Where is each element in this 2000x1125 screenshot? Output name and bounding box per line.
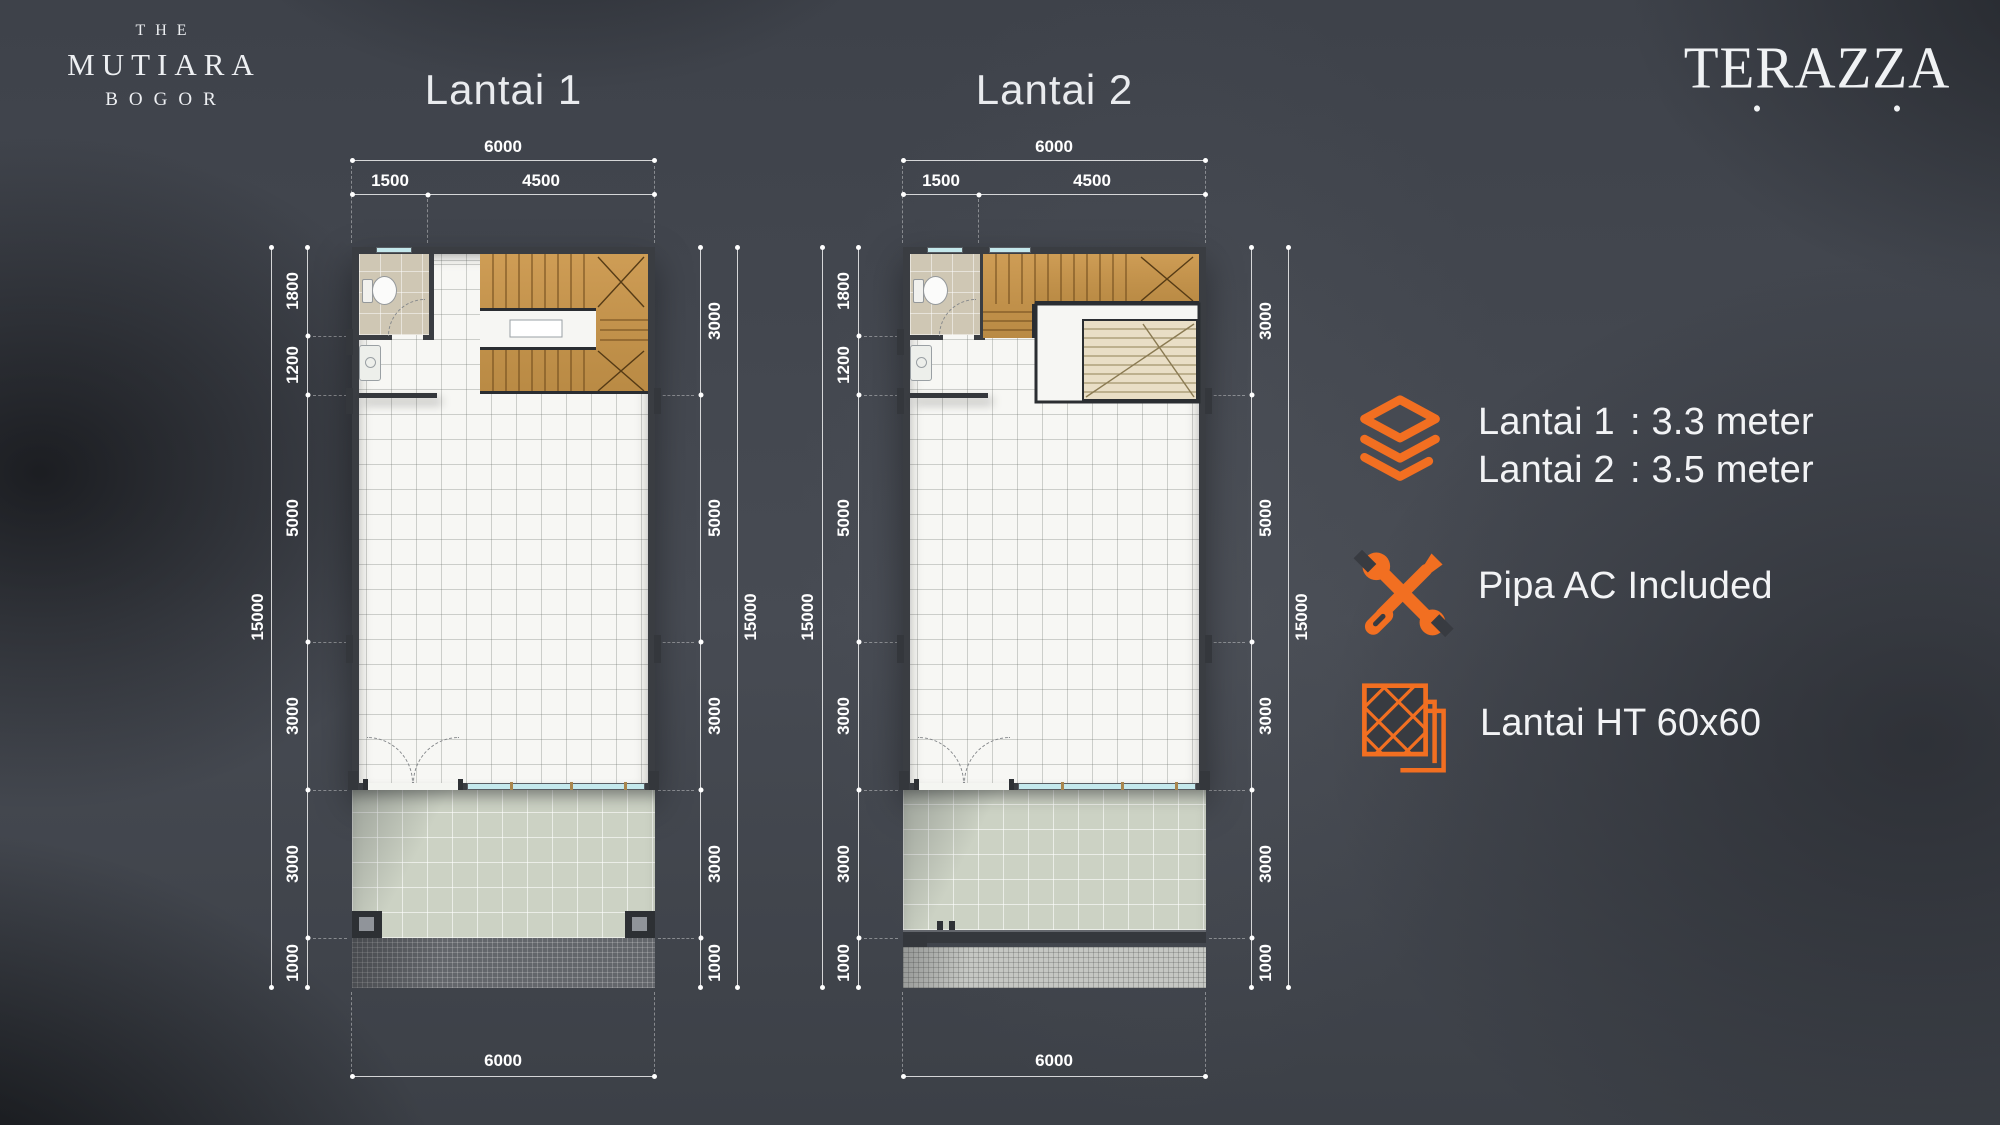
layers-icon — [1352, 392, 1448, 490]
dim-line — [903, 160, 1206, 161]
dim-tick — [699, 393, 704, 398]
dim-label: 3000 — [283, 697, 303, 735]
dim-extension — [313, 336, 347, 337]
dim-extension — [1205, 992, 1206, 1072]
dim-line — [700, 247, 701, 988]
product-logo-text: TERAZZA — [1684, 36, 1951, 102]
roof-edge-strip — [903, 947, 1206, 988]
terrace-column — [352, 911, 382, 938]
dim-extension — [654, 992, 655, 1072]
dim-label: 5000 — [1256, 499, 1276, 537]
toilet-bowl — [923, 276, 948, 305]
sink — [910, 345, 932, 381]
dim-label: 5000 — [283, 499, 303, 537]
dim-extension — [864, 642, 898, 643]
dim-tick — [426, 193, 431, 198]
brochure-canvas: { "brand": { "line1": "THE", "line2": "M… — [0, 0, 2000, 1125]
dim-label: 3000 — [834, 697, 854, 735]
dim-line — [903, 1076, 1206, 1077]
dim-tick — [699, 788, 704, 793]
window — [376, 247, 412, 253]
dim-tick — [306, 936, 311, 941]
dim-tick — [1250, 640, 1255, 645]
balcony-floor — [903, 790, 1206, 930]
wall-pilaster — [654, 388, 661, 414]
dim-label: 1500 — [371, 171, 409, 191]
dim-extension — [313, 395, 347, 396]
dim-label: 1200 — [834, 346, 854, 384]
dim-tick — [1250, 393, 1255, 398]
dim-line — [1288, 247, 1289, 988]
floor-height-label: Lantai 2 — [1478, 446, 1630, 494]
interior-wall-stub — [910, 393, 988, 398]
dim-extension — [313, 938, 347, 939]
dim-tick — [977, 193, 982, 198]
tile-icon — [1359, 680, 1449, 776]
dim-extension — [1209, 395, 1245, 396]
dim-label: 6000 — [484, 1051, 522, 1071]
terrace-column — [625, 911, 655, 938]
logo-diamond-dot — [1893, 104, 1901, 113]
dim-label: 1000 — [834, 944, 854, 982]
floorplan-lantai-1 — [352, 247, 655, 988]
dim-line — [737, 247, 738, 988]
dim-extension — [351, 166, 352, 243]
dim-extension — [902, 992, 903, 1072]
wall-corner-post — [899, 771, 909, 790]
dim-tick — [306, 640, 311, 645]
dim-label: 5000 — [834, 499, 854, 537]
staircase — [480, 254, 648, 394]
wall-corner-post — [649, 771, 659, 790]
dim-extension — [313, 790, 347, 791]
dim-label: 3000 — [1256, 697, 1276, 735]
dim-tick — [857, 334, 862, 339]
floor-heights: Lantai 1: 3.3 meter Lantai 2: 3.5 meter — [1478, 398, 1814, 494]
dim-label: 3000 — [705, 697, 725, 735]
dim-extension — [313, 642, 347, 643]
dim-extension — [1209, 938, 1245, 939]
dim-line — [822, 247, 823, 988]
dim-label: 3000 — [1256, 845, 1276, 883]
balcony-door-opening — [917, 783, 1011, 790]
plan2-title: Lantai 2 — [903, 66, 1206, 114]
dim-tick — [306, 393, 311, 398]
dim-label: 3000 — [1256, 302, 1276, 340]
terrace-floor — [352, 790, 655, 938]
dim-line — [352, 194, 655, 195]
staircase-void — [983, 254, 1199, 404]
dim-label: 1200 — [283, 346, 303, 384]
dim-label: 1800 — [283, 272, 303, 310]
dim-tick — [857, 393, 862, 398]
dim-line — [1251, 247, 1252, 988]
wall-pilaster — [346, 329, 353, 355]
floor-height-label: Lantai 1 — [1478, 398, 1630, 446]
dim-tick — [857, 788, 862, 793]
dim-tick — [306, 334, 311, 339]
flooring-note: Lantai HT 60x60 — [1480, 702, 1761, 745]
brand-line-the: THE — [47, 22, 285, 40]
dim-tick — [857, 936, 862, 941]
railing-post — [937, 921, 943, 930]
dim-label: 1800 — [834, 272, 854, 310]
carport-paving — [352, 938, 655, 988]
dim-label: 15000 — [248, 593, 268, 640]
dim-label: 6000 — [1035, 137, 1073, 157]
dim-tick — [306, 788, 311, 793]
dim-line — [352, 1076, 655, 1077]
dim-extension — [1205, 166, 1206, 243]
wall-corner-post — [348, 771, 358, 790]
wall-corner-post — [1200, 771, 1210, 790]
dim-tick — [699, 640, 704, 645]
entry-door-opening — [366, 783, 460, 790]
dim-label: 15000 — [798, 593, 818, 640]
dim-line — [903, 194, 1206, 195]
dim-tick — [1250, 936, 1255, 941]
dim-extension — [658, 938, 694, 939]
dim-extension — [864, 395, 898, 396]
dim-label: 3000 — [834, 845, 854, 883]
dim-line — [352, 160, 655, 161]
dim-label: 3000 — [705, 302, 725, 340]
dim-label: 1000 — [283, 944, 303, 982]
floor-height-value: : 3.3 meter — [1630, 401, 1814, 443]
dim-extension — [864, 336, 898, 337]
toilet-bowl — [372, 276, 397, 305]
dim-extension — [427, 199, 428, 243]
interior-wall-stub — [359, 393, 437, 398]
product-logo: TERAZZA — [1662, 35, 1972, 103]
logo-diamond-dot — [1753, 104, 1761, 113]
brand-logo: THE MUTIARA BOGOR — [35, 22, 285, 111]
floor-height-row: Lantai 2: 3.5 meter — [1478, 446, 1814, 494]
dim-extension — [658, 395, 694, 396]
wall-pilaster — [897, 329, 904, 355]
sink — [359, 345, 381, 381]
dim-label: 4500 — [1073, 171, 1111, 191]
dim-extension — [1209, 642, 1245, 643]
wall-pilaster — [346, 388, 353, 414]
dim-label: 1000 — [705, 944, 725, 982]
dim-extension — [864, 938, 898, 939]
wall-pilaster — [1205, 635, 1212, 663]
dim-label: 3000 — [705, 845, 725, 883]
dim-extension — [351, 992, 352, 1072]
wall-pilaster — [1205, 388, 1212, 414]
dim-label: 4500 — [522, 171, 560, 191]
rear-window-strip — [1018, 783, 1196, 790]
floorplan-lantai-2 — [903, 247, 1206, 988]
dim-extension — [864, 790, 898, 791]
brand-line-mutiara: MUTIARA — [43, 47, 285, 83]
dim-label: 1000 — [1256, 944, 1276, 982]
balcony-railing — [903, 930, 1206, 943]
front-window-strip — [467, 783, 645, 790]
dim-label: 6000 — [1035, 1051, 1073, 1071]
spec-panel: Lantai 1: 3.3 meter Lantai 2: 3.5 meter … — [1345, 385, 1965, 805]
dim-extension — [1209, 790, 1245, 791]
dim-label: 1500 — [922, 171, 960, 191]
dim-label: 15000 — [741, 593, 761, 640]
dim-label: 5000 — [705, 499, 725, 537]
dim-line — [858, 247, 859, 988]
wall-pilaster — [897, 635, 904, 663]
dim-label: 6000 — [484, 137, 522, 157]
dim-extension — [978, 199, 979, 243]
dim-line — [271, 247, 272, 988]
wall-pilaster — [897, 388, 904, 414]
ac-note: Pipa AC Included — [1478, 565, 1773, 608]
floor-height-row: Lantai 1: 3.3 meter — [1478, 398, 1814, 446]
tools-icon — [1357, 547, 1449, 639]
dim-label: 15000 — [1292, 593, 1312, 640]
dim-tick — [1250, 788, 1255, 793]
floor-height-value: : 3.5 meter — [1630, 449, 1814, 491]
dim-line — [307, 247, 308, 988]
window — [927, 247, 963, 253]
dim-tick — [699, 936, 704, 941]
dim-extension — [658, 642, 694, 643]
railing-post — [949, 921, 955, 930]
dim-extension — [658, 790, 694, 791]
wall-pilaster — [654, 635, 661, 663]
plan1-title: Lantai 1 — [352, 66, 655, 114]
dim-extension — [654, 166, 655, 243]
dim-label: 3000 — [283, 845, 303, 883]
dim-tick — [857, 640, 862, 645]
brand-line-bogor: BOGOR — [47, 89, 285, 111]
window — [989, 247, 1031, 253]
wall-pilaster — [346, 635, 353, 663]
dim-extension — [902, 166, 903, 243]
